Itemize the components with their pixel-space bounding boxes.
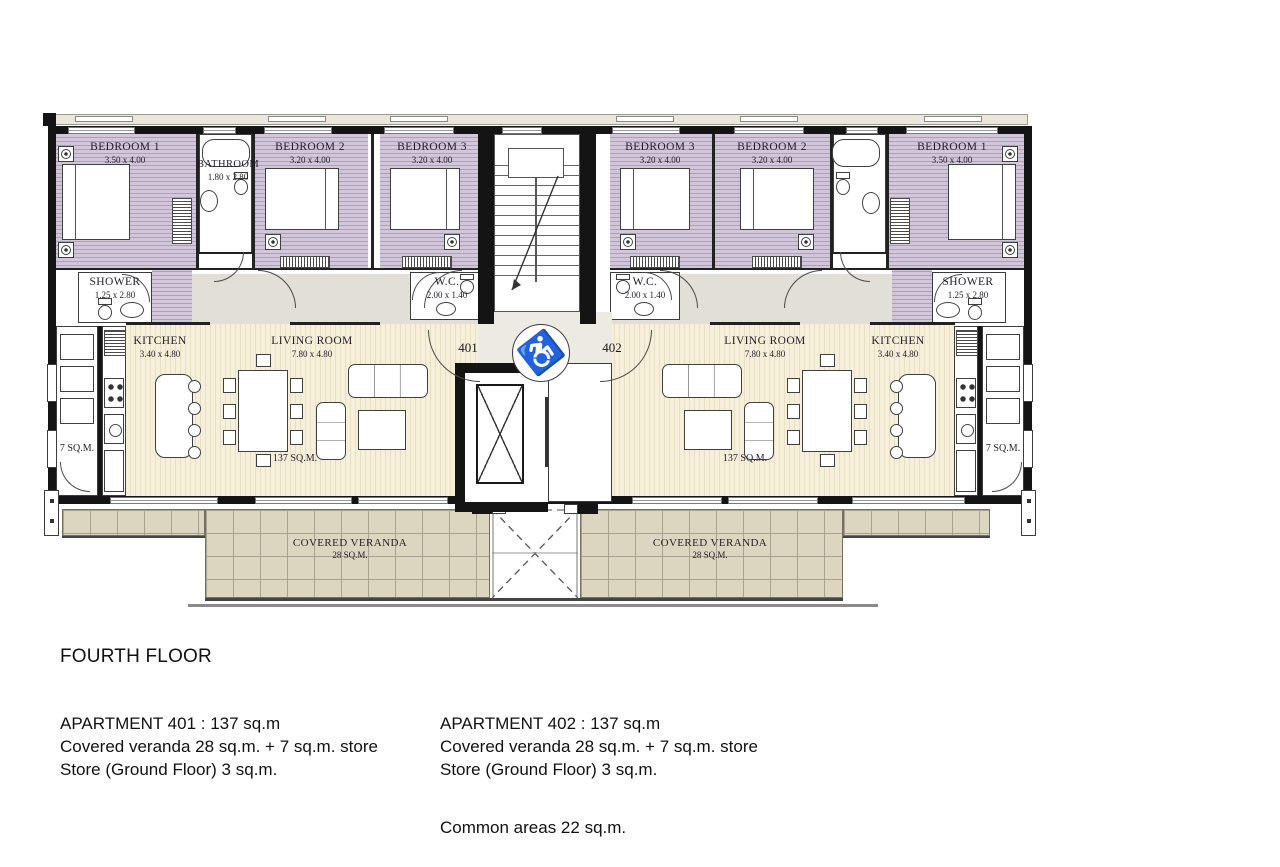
elevator-wall	[455, 363, 465, 512]
wheelchair-accessible-icon: ♿	[512, 324, 570, 382]
elevator-wall	[455, 502, 548, 512]
window	[734, 127, 804, 134]
wheelchair-glyph: ♿	[515, 328, 566, 378]
store-shelf-icon	[60, 334, 94, 360]
room-dim: 2.00 x 1.40	[590, 290, 700, 302]
pillow-icon	[1002, 165, 1015, 239]
sink-bowl-icon	[961, 424, 974, 437]
level-marker	[1021, 490, 1036, 536]
kitchen-island-icon	[898, 374, 936, 458]
nightstand-icon	[265, 234, 281, 250]
label-wc-left: W.C. 2.00 x 1.40	[392, 275, 502, 302]
room-dim: 7.80 x 4.80	[257, 349, 367, 361]
window	[203, 127, 236, 134]
partition	[196, 134, 199, 268]
radiator-icon	[630, 256, 680, 268]
nightstand-icon	[798, 234, 814, 250]
dining-table-icon	[238, 370, 288, 452]
veranda-void-x	[492, 509, 578, 598]
lamp-icon	[623, 237, 633, 247]
stool-icon	[890, 446, 903, 459]
sofa-icon	[662, 364, 742, 398]
stool-icon	[890, 402, 903, 415]
nightstand-icon	[444, 234, 460, 250]
store-shelf-icon	[986, 334, 1020, 360]
window	[384, 127, 454, 134]
dining-table-icon	[802, 370, 852, 452]
bed-icon	[390, 168, 460, 230]
store-shelf-icon	[60, 366, 94, 392]
toilet-icon	[836, 179, 850, 195]
apartment-402-info: APARTMENT 402 : 137 sq.m Covered veranda…	[440, 712, 758, 781]
window	[612, 127, 680, 134]
coffee-table-icon	[358, 410, 406, 450]
fridge-icon	[956, 330, 978, 356]
veranda-left-strip	[62, 509, 205, 536]
lamp-icon	[61, 245, 71, 255]
pillow-icon	[741, 169, 754, 229]
stove-icon	[104, 378, 124, 408]
room-dim: 1.80 x 2.80	[173, 172, 283, 184]
kitchen-sink-icon	[956, 414, 976, 444]
pillow-icon	[621, 169, 634, 229]
room-dim: 3.50 x 4.00	[897, 155, 1007, 167]
window-slider	[728, 497, 818, 504]
marker-dot	[1027, 519, 1031, 523]
shutter-box	[1023, 364, 1033, 402]
veranda-name: COVERED VERANDA	[600, 536, 820, 550]
room-dim: 1.25 x 2.80	[913, 290, 1023, 302]
wall-stub	[578, 504, 598, 514]
partition	[56, 268, 480, 270]
room-dim: 2.00 x 1.40	[392, 290, 502, 302]
stair-direction-arrow-icon	[494, 142, 580, 310]
sink-bowl-icon	[109, 424, 122, 437]
apartment-area: 137 SQ.M.	[240, 452, 350, 465]
stool-icon	[890, 424, 903, 437]
sink-icon	[634, 302, 654, 316]
common-areas-line: Common areas 22 sq.m.	[440, 816, 626, 839]
apartment-401-line3: Store (Ground Floor) 3 sq.m.	[60, 758, 378, 781]
wardrobe-icon	[172, 198, 192, 244]
veranda-edge	[843, 536, 990, 538]
column-base	[564, 504, 578, 514]
window-sill	[390, 116, 448, 122]
store-shelf-icon	[986, 366, 1020, 392]
label-bedroom2-left: BEDROOM 2 3.20 x 4.00	[255, 140, 365, 167]
store-wall	[978, 326, 982, 496]
chair-icon	[854, 404, 867, 419]
label-kitchen-right: KITCHEN 3.40 x 4.80	[843, 334, 953, 361]
room-name: BEDROOM 3	[605, 140, 715, 155]
chair-icon	[820, 354, 835, 367]
partition	[371, 134, 374, 268]
bed-icon	[62, 164, 130, 240]
room-name: W.C.	[392, 275, 502, 290]
level-marker	[44, 490, 59, 536]
window	[906, 127, 998, 134]
room-dim: 3.50 x 4.00	[70, 155, 180, 167]
toilet-icon	[98, 305, 112, 320]
bed-icon	[740, 168, 814, 230]
room-dim: 3.40 x 4.80	[105, 349, 215, 361]
apartment-402-title: APARTMENT 402 : 137 sq.m	[440, 712, 758, 735]
label-living-right: LIVING ROOM 7.80 x 4.80	[710, 334, 820, 361]
chair-icon	[787, 378, 800, 393]
lamp-icon	[447, 237, 457, 247]
kitchen-sink-icon	[104, 414, 124, 444]
partition	[126, 322, 210, 325]
pillow-icon	[63, 165, 76, 239]
floor-title: FOURTH FLOOR	[60, 646, 212, 668]
room-name: BEDROOM 1	[897, 140, 1007, 155]
room-name: BEDROOM 2	[255, 140, 365, 155]
balcony-slab-strip	[52, 114, 1028, 125]
partition	[870, 322, 955, 325]
room-name: SHOWER	[60, 275, 170, 290]
window	[502, 127, 542, 134]
room-dim: 3.20 x 4.00	[255, 155, 365, 167]
floor-plan: ♿ 401 402 BEDROOM 1 3.50 x 4.00 BATHROOM…	[40, 112, 1040, 604]
window-slider	[632, 497, 722, 504]
chair-icon	[787, 404, 800, 419]
elevator-car	[476, 384, 524, 484]
partition	[710, 322, 800, 325]
bathtub-icon	[832, 139, 880, 167]
window-slider	[110, 497, 218, 504]
apartment-area: 137 SQ.M.	[690, 452, 800, 465]
window	[264, 127, 332, 134]
stool-icon	[188, 424, 201, 437]
store-shelf-icon	[60, 398, 94, 424]
stool-icon	[188, 446, 201, 459]
apartment-401-title: APARTMENT 401 : 137 sq.m	[60, 712, 378, 735]
veranda-edge	[205, 598, 843, 601]
cabinet-icon	[956, 450, 976, 492]
chair-icon	[787, 430, 800, 445]
corner-marker-icon	[43, 113, 56, 126]
toilet-tank-icon	[836, 172, 850, 179]
room-dim: 3.40 x 4.80	[843, 349, 953, 361]
stool-icon	[890, 380, 903, 393]
sofa-icon	[348, 364, 428, 398]
room-name: KITCHEN	[843, 334, 953, 349]
label-living-left: LIVING ROOM 7.80 x 4.80	[257, 334, 367, 361]
label-store-right: 7 SQ.M.	[973, 442, 1033, 455]
window-slider	[255, 497, 352, 504]
stool-icon	[188, 402, 201, 415]
common-areas-info: Common areas 22 sq.m.	[440, 816, 626, 839]
label-bedroom3-left: BEDROOM 3 3.20 x 4.00	[377, 140, 487, 167]
window-sill	[75, 116, 133, 122]
veranda-edge	[62, 536, 205, 538]
bed-icon	[948, 164, 1016, 240]
chair-icon	[223, 430, 236, 445]
radiator-icon	[402, 256, 452, 268]
room-dim: 7.80 x 4.80	[710, 349, 820, 361]
cabinet-icon	[104, 450, 124, 492]
window	[68, 127, 135, 134]
stool-icon	[188, 380, 201, 393]
lamp-icon	[268, 237, 278, 247]
veranda-name: COVERED VERANDA	[240, 536, 460, 550]
room-name: BEDROOM 1	[70, 140, 180, 155]
label-bedroom3-right: BEDROOM 3 3.20 x 4.00	[605, 140, 715, 167]
chair-icon	[290, 404, 303, 419]
marker-dot	[50, 519, 54, 523]
veranda-area: 28 SQ.M.	[240, 550, 460, 562]
room-dim: 3.20 x 4.00	[605, 155, 715, 167]
stove-icon	[956, 378, 976, 408]
apartment-401-info: APARTMENT 401 : 137 sq.m Covered veranda…	[60, 712, 378, 781]
sink-icon	[120, 302, 144, 318]
veranda-right-strip	[843, 509, 990, 536]
room-name: BEDROOM 2	[717, 140, 827, 155]
window-sill	[616, 116, 674, 122]
window-slider	[852, 497, 965, 504]
apartment-402-line2: Covered veranda 28 sq.m. + 7 sq.m. store	[440, 735, 758, 758]
shutter-box	[47, 364, 57, 402]
chair-icon	[290, 430, 303, 445]
label-veranda-right: COVERED VERANDA 28 SQ.M.	[600, 536, 820, 562]
wardrobe-icon	[890, 198, 910, 244]
veranda-area: 28 SQ.M.	[600, 550, 820, 562]
label-area-left: 137 SQ.M.	[240, 452, 350, 465]
sink-icon	[200, 190, 218, 212]
chair-icon	[854, 378, 867, 393]
label-bedroom2-right: BEDROOM 2 3.20 x 4.00	[717, 140, 827, 167]
label-wc-right: W.C. 2.00 x 1.40	[590, 275, 700, 302]
store-area: 7 SQ.M.	[47, 442, 107, 455]
bed-icon	[620, 168, 690, 230]
label-kitchen-left: KITCHEN 3.40 x 4.80	[105, 334, 215, 361]
marker-dot	[1027, 499, 1031, 503]
store-shelf-icon	[986, 398, 1020, 424]
unit-number-402: 402	[592, 340, 632, 356]
elevator-door	[545, 397, 548, 467]
page: { "plan": { "rooms": { "bedroom1": {"nam…	[0, 0, 1280, 867]
radiator-icon	[280, 256, 330, 268]
sink-icon	[936, 302, 960, 318]
room-name: BEDROOM 3	[377, 140, 487, 155]
room-name: W.C.	[590, 275, 700, 290]
toilet-icon	[968, 305, 982, 320]
sink-icon	[862, 192, 880, 214]
nightstand-icon	[1002, 242, 1018, 258]
elevator-lobby	[548, 363, 612, 502]
label-area-right: 137 SQ.M.	[690, 452, 800, 465]
label-shower-left: SHOWER 1.25 x 2.80	[60, 275, 170, 302]
radiator-icon	[752, 256, 802, 268]
partition	[290, 322, 380, 325]
coffee-table-icon	[684, 410, 732, 450]
pillow-icon	[325, 169, 338, 229]
chair-icon	[223, 378, 236, 393]
label-veranda-left: COVERED VERANDA 28 SQ.M.	[240, 536, 460, 562]
room-name: LIVING ROOM	[257, 334, 367, 349]
partition	[886, 134, 889, 268]
slab-edge-line	[188, 604, 878, 607]
room-dim: 1.25 x 2.80	[60, 290, 170, 302]
chair-icon	[854, 430, 867, 445]
room-name: LIVING ROOM	[710, 334, 820, 349]
label-store-left: 7 SQ.M.	[47, 442, 107, 455]
chair-icon	[820, 454, 835, 467]
room-name: KITCHEN	[105, 334, 215, 349]
label-shower-right: SHOWER 1.25 x 2.80	[913, 275, 1023, 302]
window-sill	[268, 116, 326, 122]
label-bedroom1-left: BEDROOM 1 3.50 x 4.00	[70, 140, 180, 167]
label-bedroom1-right: BEDROOM 1 3.50 x 4.00	[897, 140, 1007, 167]
window-slider	[358, 497, 448, 504]
chair-icon	[223, 404, 236, 419]
nightstand-icon	[58, 242, 74, 258]
store-area: 7 SQ.M.	[973, 442, 1033, 455]
room-dim: 3.20 x 4.00	[717, 155, 827, 167]
lamp-icon	[1005, 245, 1015, 255]
nightstand-icon	[620, 234, 636, 250]
window	[846, 127, 878, 134]
lamp-icon	[801, 237, 811, 247]
chair-icon	[290, 378, 303, 393]
room-name: SHOWER	[913, 275, 1023, 290]
window-sill	[924, 116, 982, 122]
unit-number-401: 401	[448, 340, 488, 356]
window-sill	[740, 116, 798, 122]
marker-dot	[50, 499, 54, 503]
pillow-icon	[446, 169, 459, 229]
apartment-402-line3: Store (Ground Floor) 3 sq.m.	[440, 758, 758, 781]
apartment-401-line2: Covered veranda 28 sq.m. + 7 sq.m. store	[60, 735, 378, 758]
room-dim: 3.20 x 4.00	[377, 155, 487, 167]
